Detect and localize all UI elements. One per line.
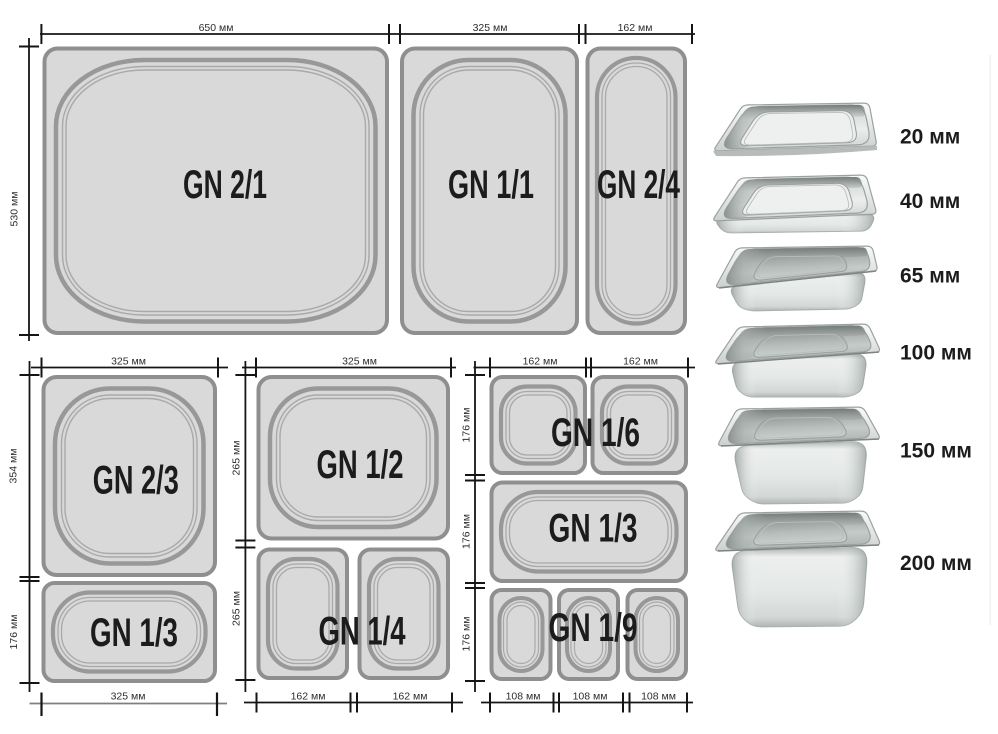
svg-text:20 мм: 20 мм (900, 126, 960, 149)
svg-text:108 мм: 108 мм (641, 691, 676, 703)
svg-text:325 мм: 325 мм (111, 356, 146, 368)
svg-text:200 мм: 200 мм (900, 552, 972, 575)
svg-text:162 мм: 162 мм (523, 356, 558, 368)
svg-text:GN 1/6: GN 1/6 (551, 411, 640, 455)
svg-text:GN 2/3: GN 2/3 (93, 459, 179, 503)
svg-text:GN 2/4: GN 2/4 (597, 163, 680, 207)
svg-text:325 мм: 325 мм (473, 22, 508, 34)
svg-text:100 мм: 100 мм (900, 342, 972, 365)
svg-text:354 мм: 354 мм (7, 449, 19, 484)
svg-text:GN 1/3: GN 1/3 (549, 506, 638, 550)
svg-text:108 мм: 108 мм (573, 691, 608, 703)
svg-text:162 мм: 162 мм (623, 356, 658, 368)
svg-text:162 мм: 162 мм (291, 691, 326, 703)
svg-text:176 мм: 176 мм (460, 617, 472, 652)
svg-text:GN 1/9: GN 1/9 (549, 606, 638, 650)
svg-text:GN 1/3: GN 1/3 (90, 611, 178, 655)
svg-text:162 мм: 162 мм (618, 22, 653, 34)
svg-text:325 мм: 325 мм (342, 356, 377, 368)
svg-text:108 мм: 108 мм (506, 691, 541, 703)
svg-text:265 мм: 265 мм (230, 441, 242, 476)
svg-text:650 мм: 650 мм (199, 22, 234, 34)
svg-text:GN 1/1: GN 1/1 (448, 163, 534, 207)
svg-text:GN 1/4: GN 1/4 (319, 610, 407, 654)
svg-text:325 мм: 325 мм (111, 691, 146, 703)
svg-text:162 мм: 162 мм (393, 691, 428, 703)
svg-text:GN 1/2: GN 1/2 (317, 443, 404, 487)
svg-text:176 мм: 176 мм (8, 615, 20, 650)
svg-text:176 мм: 176 мм (460, 514, 472, 549)
svg-text:176 мм: 176 мм (460, 408, 472, 443)
svg-text:GN 2/1: GN 2/1 (183, 163, 267, 207)
svg-text:265 мм: 265 мм (230, 591, 242, 626)
svg-text:150 мм: 150 мм (900, 440, 972, 463)
svg-text:65 мм: 65 мм (900, 265, 960, 288)
svg-text:40 мм: 40 мм (900, 190, 960, 213)
svg-text:530 мм: 530 мм (8, 192, 20, 227)
